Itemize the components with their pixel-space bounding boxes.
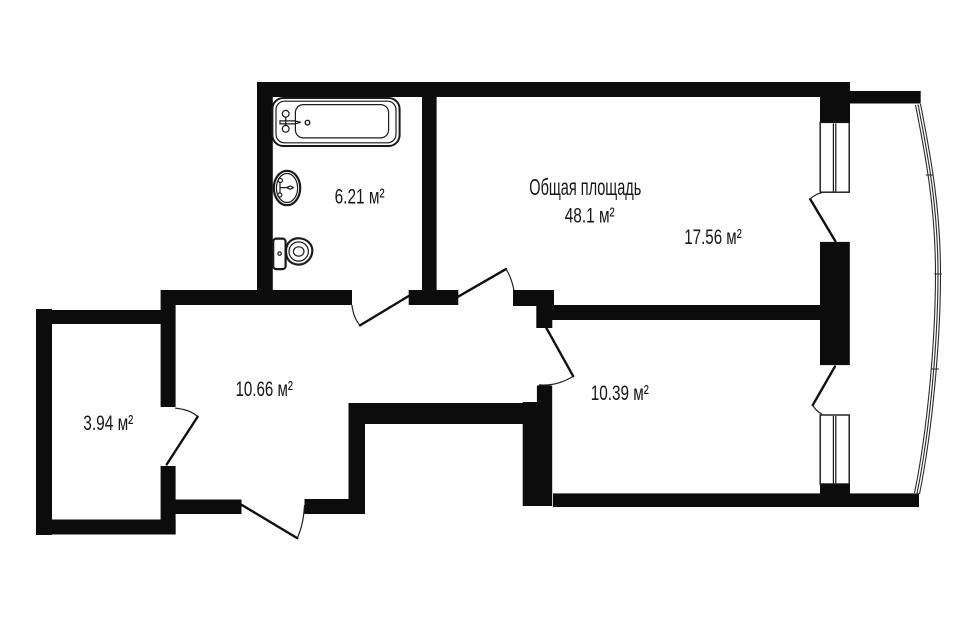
svg-text:10.66 м²: 10.66 м² <box>235 378 293 401</box>
svg-text:48.1 м²: 48.1 м² <box>565 205 615 228</box>
svg-text:Общая площадь: Общая площадь <box>529 174 641 200</box>
svg-text:10.39 м²: 10.39 м² <box>591 382 649 405</box>
svg-text:6.21 м²: 6.21 м² <box>335 186 385 209</box>
svg-text:17.56 м²: 17.56 м² <box>684 226 742 249</box>
svg-text:3.94 м²: 3.94 м² <box>83 412 133 435</box>
